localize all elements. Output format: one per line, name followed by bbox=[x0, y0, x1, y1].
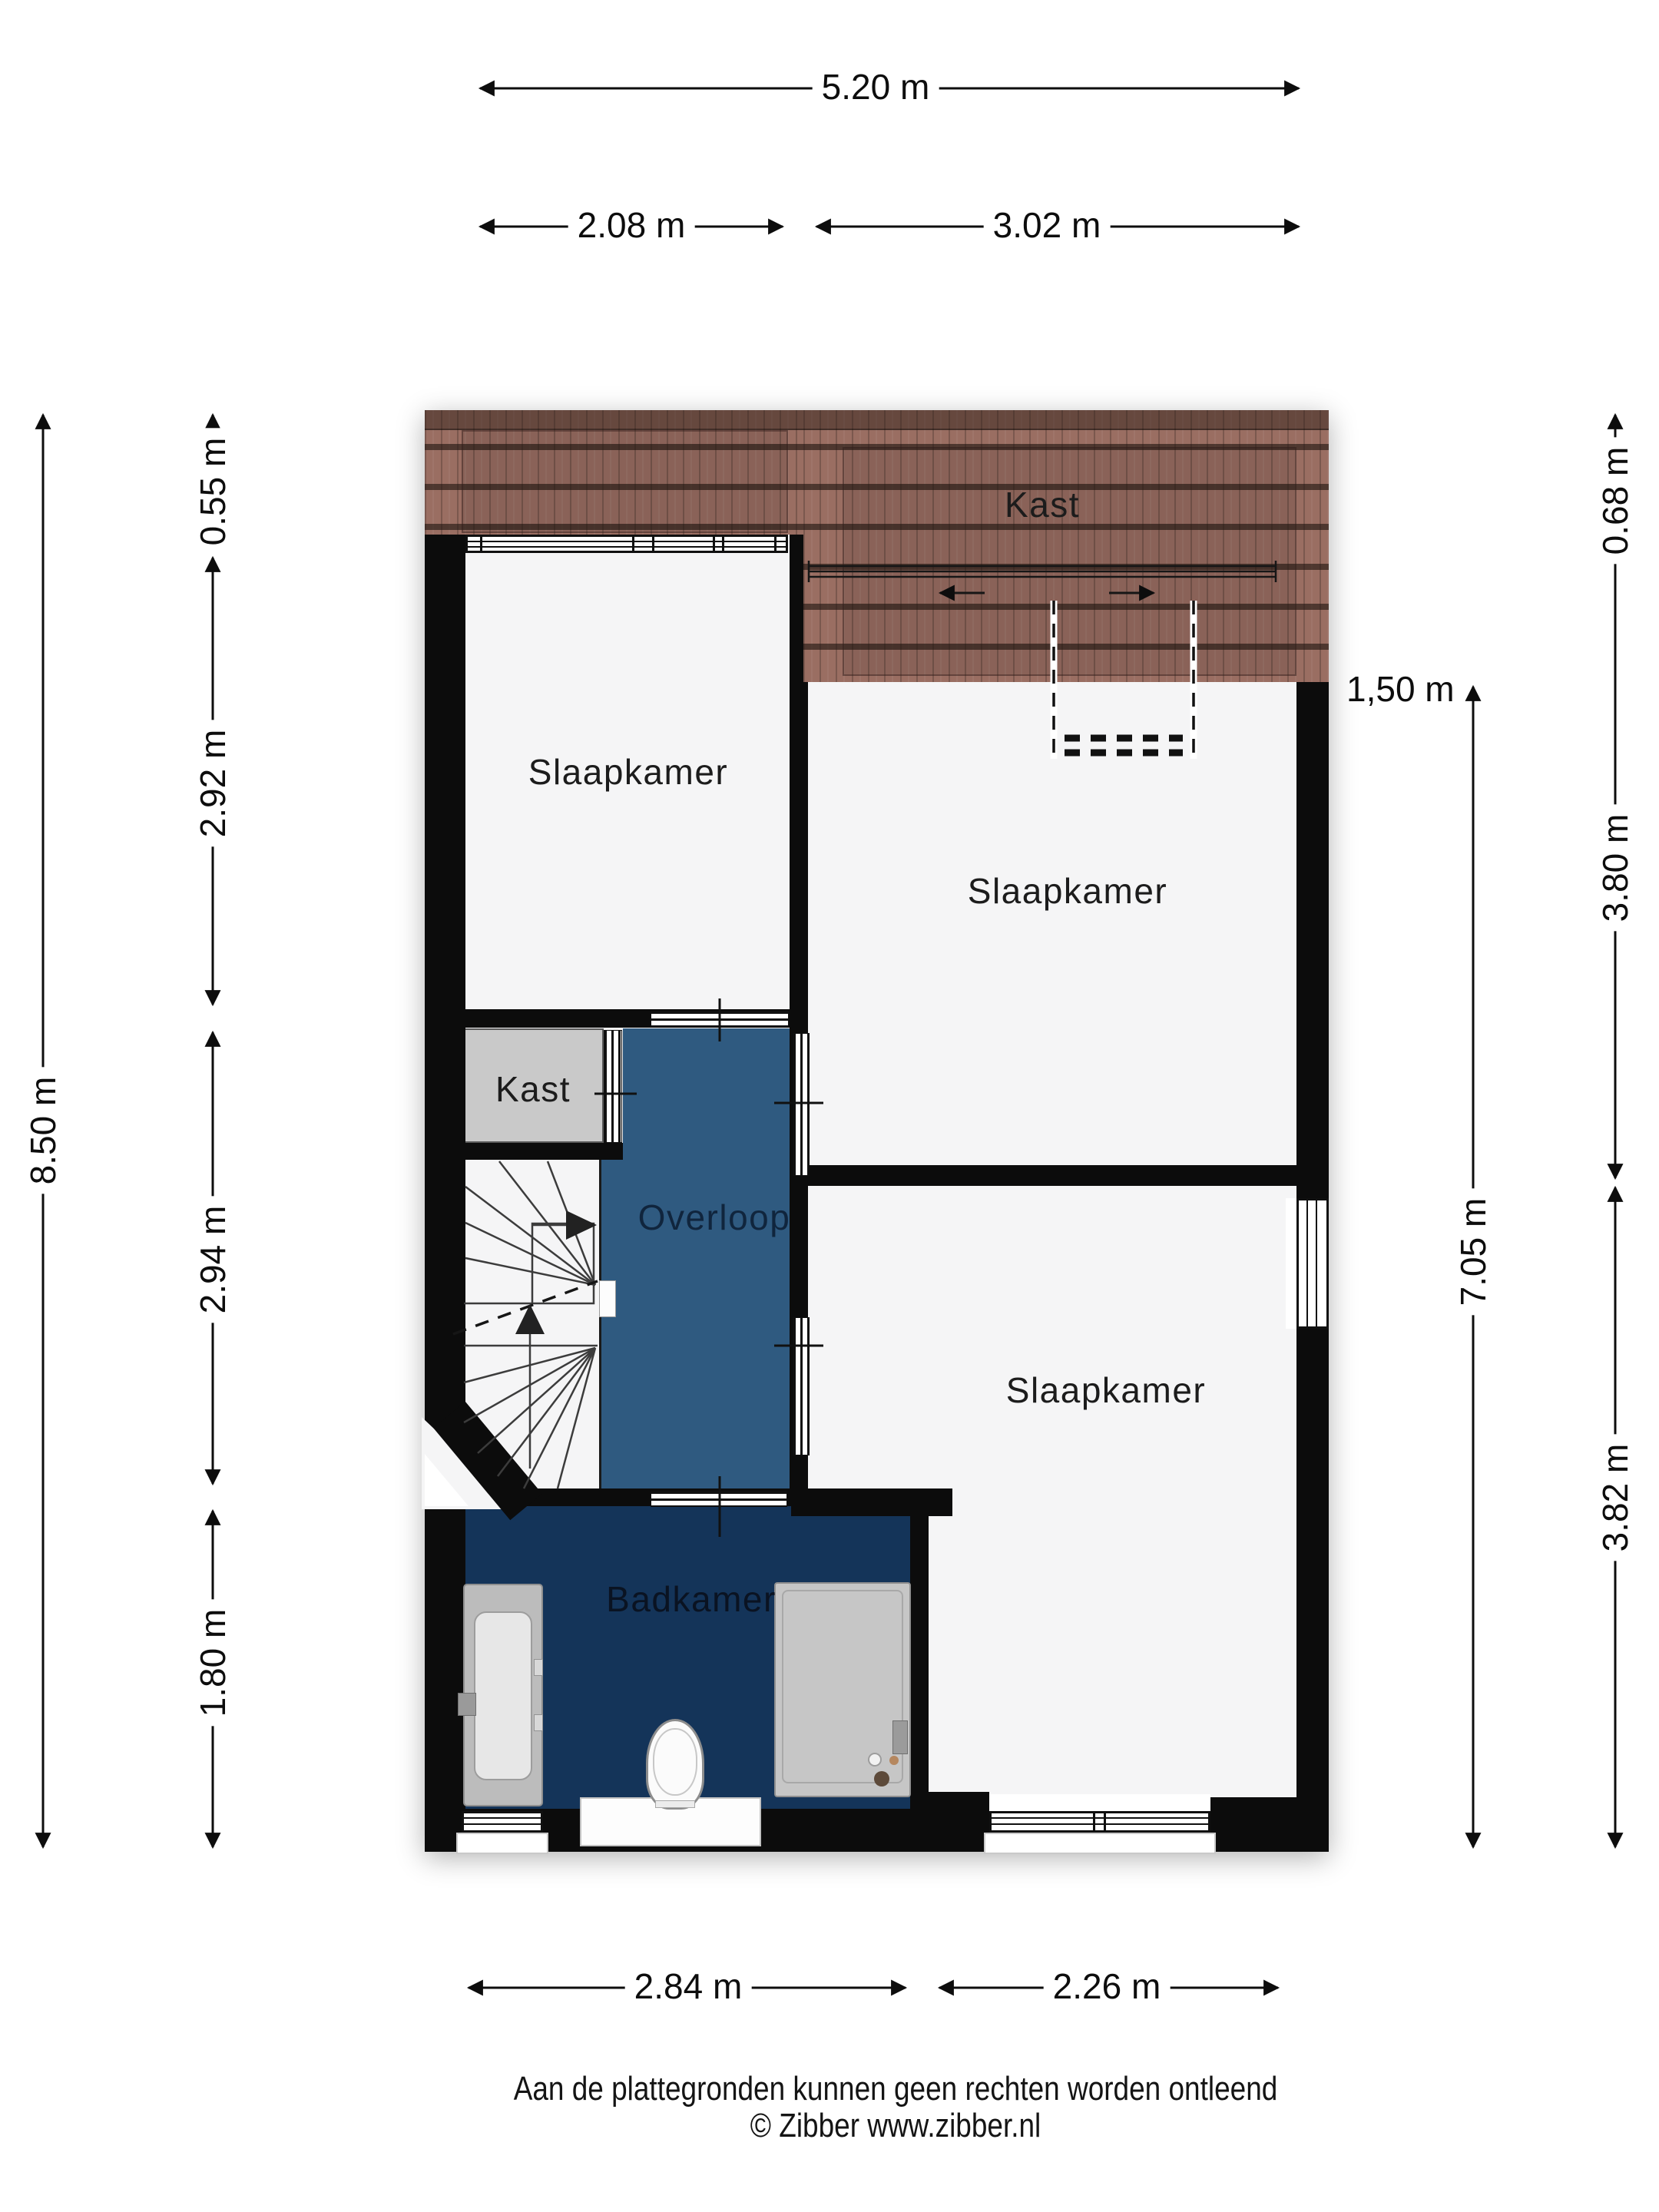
door-axis-ticks bbox=[594, 998, 823, 1537]
dim-left-seg-2: 2.94 m bbox=[192, 1197, 233, 1323]
floorplan-page: Slaapkamer Slaapkamer Slaapkamer Kast Ka… bbox=[0, 0, 1659, 2212]
dim-right-inner: 7.05 m bbox=[1452, 1189, 1494, 1316]
plan-linework bbox=[0, 0, 1659, 2212]
dim-top-right: 3.02 m bbox=[984, 204, 1111, 246]
dim-right-seg-0: 0.68 m bbox=[1594, 438, 1636, 565]
footer-copyright: © Zibber www.zibber.nl bbox=[750, 2107, 1041, 2145]
dim-left-total: 8.50 m bbox=[22, 1068, 64, 1194]
dim-left-seg-3: 1.80 m bbox=[192, 1600, 233, 1727]
dim-right-seg-2: 3.82 m bbox=[1594, 1435, 1636, 1561]
dim-headroom: 1,50 m bbox=[1346, 668, 1455, 710]
roof-window-dashed-outline bbox=[1054, 601, 1194, 759]
stairwell-corner-chamfer bbox=[422, 1415, 526, 1509]
dim-top-total: 5.20 m bbox=[813, 66, 939, 108]
dim-left-seg-0: 0.55 m bbox=[192, 429, 233, 555]
kast-sliding-door-track bbox=[809, 561, 1276, 582]
footer-disclaimer: Aan de plattegronden kunnen geen rechten… bbox=[514, 2070, 1278, 2108]
dim-top-left: 2.08 m bbox=[568, 204, 695, 246]
dim-bottom-left: 2.84 m bbox=[625, 1965, 752, 2007]
dim-left-seg-1: 2.92 m bbox=[192, 720, 233, 847]
dim-bottom-right: 2.26 m bbox=[1044, 1965, 1171, 2007]
dimension-arrows bbox=[43, 88, 1615, 1988]
dim-right-seg-1: 3.80 m bbox=[1594, 805, 1636, 932]
